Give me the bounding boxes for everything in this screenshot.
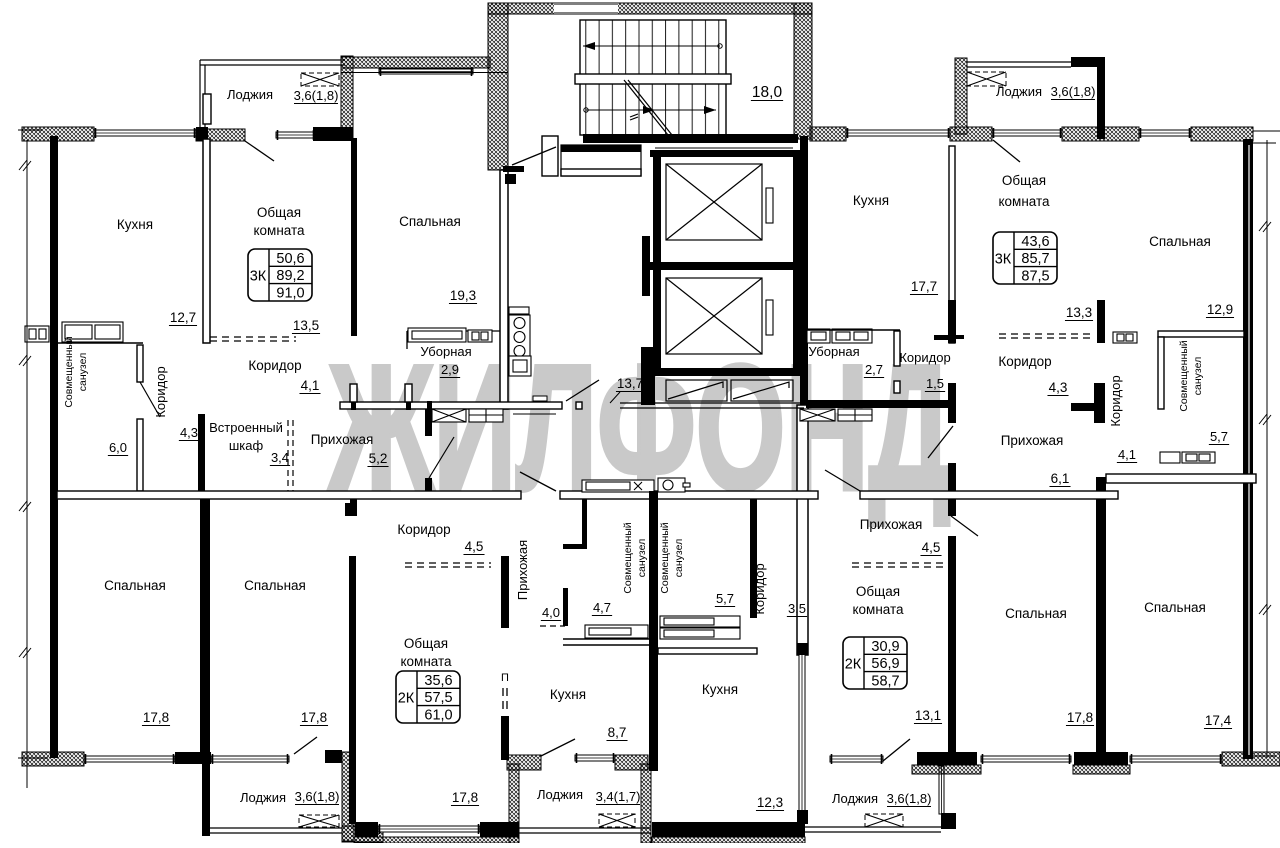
svg-text:Общая: Общая	[856, 584, 900, 599]
svg-text:3,6(1,8): 3,6(1,8)	[294, 88, 339, 103]
svg-text:87,5: 87,5	[1021, 268, 1049, 284]
svg-text:3,4(1,7): 3,4(1,7)	[596, 789, 641, 804]
svg-text:Прихожая: Прихожая	[515, 540, 530, 600]
svg-text:13,7: 13,7	[617, 376, 643, 391]
svg-text:Кухня: Кухня	[853, 193, 889, 208]
svg-text:Лоджия: Лоджия	[537, 787, 583, 802]
svg-text:3,4: 3,4	[271, 450, 289, 465]
svg-text:Лоджия: Лоджия	[996, 84, 1042, 99]
svg-text:Встроенный: Встроенный	[209, 420, 283, 435]
svg-text:Совмещенный: Совмещенный	[63, 336, 75, 407]
svg-text:Общая: Общая	[404, 636, 448, 651]
svg-text:Коридор: Коридор	[397, 522, 450, 537]
svg-text:санузел: санузел	[673, 539, 685, 577]
svg-text:2К: 2К	[398, 691, 415, 707]
svg-text:Кухня: Кухня	[550, 687, 586, 702]
svg-text:Совмещенный: Совмещенный	[1178, 340, 1190, 411]
svg-text:Совмещенный: Совмещенный	[659, 522, 671, 593]
svg-text:91,0: 91,0	[276, 285, 304, 301]
svg-text:57,5: 57,5	[424, 690, 452, 706]
svg-text:санузел: санузел	[636, 539, 648, 577]
svg-text:Коридор: Коридор	[899, 350, 950, 365]
svg-text:Общая: Общая	[1002, 173, 1046, 188]
svg-text:6,0: 6,0	[109, 440, 127, 455]
svg-text:13,3: 13,3	[1066, 305, 1092, 320]
svg-text:17,8: 17,8	[452, 790, 478, 805]
svg-text:Коридор: Коридор	[153, 366, 168, 417]
svg-text:85,7: 85,7	[1021, 251, 1049, 267]
svg-text:19,3: 19,3	[450, 288, 476, 303]
svg-text:Коридор: Коридор	[752, 563, 767, 614]
svg-text:4,1: 4,1	[301, 378, 320, 393]
svg-text:56,9: 56,9	[871, 656, 899, 672]
svg-text:50,6: 50,6	[276, 251, 304, 267]
svg-text:4,5: 4,5	[465, 539, 484, 554]
svg-text:8,7: 8,7	[608, 725, 627, 740]
svg-text:Кухня: Кухня	[117, 217, 153, 232]
svg-text:5,7: 5,7	[716, 591, 734, 606]
svg-text:комната: комната	[400, 654, 452, 669]
svg-text:Лоджия: Лоджия	[240, 790, 286, 805]
svg-text:4,1: 4,1	[1118, 447, 1136, 462]
svg-text:18,0: 18,0	[752, 84, 783, 101]
svg-text:4,3: 4,3	[1049, 380, 1068, 395]
svg-text:4,5: 4,5	[922, 540, 941, 555]
svg-text:3,6(1,8): 3,6(1,8)	[295, 789, 340, 804]
svg-text:3,6(1,8): 3,6(1,8)	[887, 791, 932, 806]
svg-text:89,2: 89,2	[276, 268, 304, 284]
svg-text:Коридор: Коридор	[998, 354, 1051, 369]
svg-text:17,7: 17,7	[911, 279, 937, 294]
svg-text:5,7: 5,7	[1210, 429, 1228, 444]
svg-text:2,7: 2,7	[865, 362, 883, 377]
svg-text:Спальная: Спальная	[104, 578, 166, 593]
svg-text:13,1: 13,1	[915, 708, 941, 723]
svg-text:Спальная: Спальная	[1005, 606, 1067, 621]
svg-text:35,6: 35,6	[424, 673, 452, 689]
svg-text:П: П	[501, 672, 509, 684]
svg-text:санузел: санузел	[77, 353, 89, 391]
svg-text:Спальная: Спальная	[399, 214, 461, 229]
svg-text:комната: комната	[852, 602, 904, 617]
svg-text:Общая: Общая	[257, 205, 301, 220]
svg-text:Коридор: Коридор	[248, 358, 301, 373]
svg-text:Прихожая: Прихожая	[860, 517, 923, 532]
svg-text:4,3: 4,3	[180, 425, 198, 440]
svg-text:санузел: санузел	[1192, 357, 1204, 395]
svg-text:17,8: 17,8	[301, 710, 327, 725]
svg-text:12,9: 12,9	[1207, 302, 1233, 317]
svg-text:4,7: 4,7	[593, 600, 611, 615]
svg-text:61,0: 61,0	[424, 707, 452, 723]
svg-text:17,4: 17,4	[1205, 713, 1232, 728]
svg-text:Уборная: Уборная	[808, 344, 859, 359]
svg-text:комната: комната	[253, 223, 305, 238]
svg-text:1,5: 1,5	[926, 376, 944, 391]
svg-text:Кухня: Кухня	[702, 682, 738, 697]
svg-text:Прихожая: Прихожая	[311, 432, 374, 447]
svg-text:3,5: 3,5	[788, 601, 806, 616]
svg-text:комната: комната	[998, 194, 1050, 209]
svg-text:13,5: 13,5	[293, 318, 319, 333]
svg-text:17,8: 17,8	[143, 710, 169, 725]
svg-text:12,7: 12,7	[170, 310, 196, 325]
svg-text:Спальная: Спальная	[1149, 234, 1211, 249]
svg-text:Совмещенный: Совмещенный	[622, 522, 634, 593]
svg-text:30,9: 30,9	[871, 639, 899, 655]
svg-text:Коридор: Коридор	[1108, 375, 1123, 426]
svg-text:58,7: 58,7	[871, 673, 899, 689]
svg-text:5,2: 5,2	[369, 451, 388, 466]
svg-text:Спальная: Спальная	[1144, 600, 1206, 615]
svg-text:Лоджия: Лоджия	[227, 87, 273, 102]
svg-text:2К: 2К	[845, 657, 862, 673]
svg-text:Лоджия: Лоджия	[832, 791, 878, 806]
svg-text:6,1: 6,1	[1051, 471, 1070, 486]
svg-text:шкаф: шкаф	[229, 438, 264, 453]
svg-text:17,8: 17,8	[1067, 710, 1093, 725]
svg-text:2,9: 2,9	[441, 362, 459, 377]
svg-text:3,6(1,8): 3,6(1,8)	[1051, 84, 1096, 99]
svg-text:3К: 3К	[250, 269, 267, 285]
svg-text:Уборная: Уборная	[420, 344, 471, 359]
svg-text:4,0: 4,0	[542, 605, 560, 620]
svg-text:12,3: 12,3	[757, 795, 783, 810]
svg-text:3К: 3К	[995, 252, 1012, 268]
svg-text:Спальная: Спальная	[244, 578, 306, 593]
svg-text:Прихожая: Прихожая	[1001, 433, 1064, 448]
svg-text:43,6: 43,6	[1021, 234, 1049, 250]
